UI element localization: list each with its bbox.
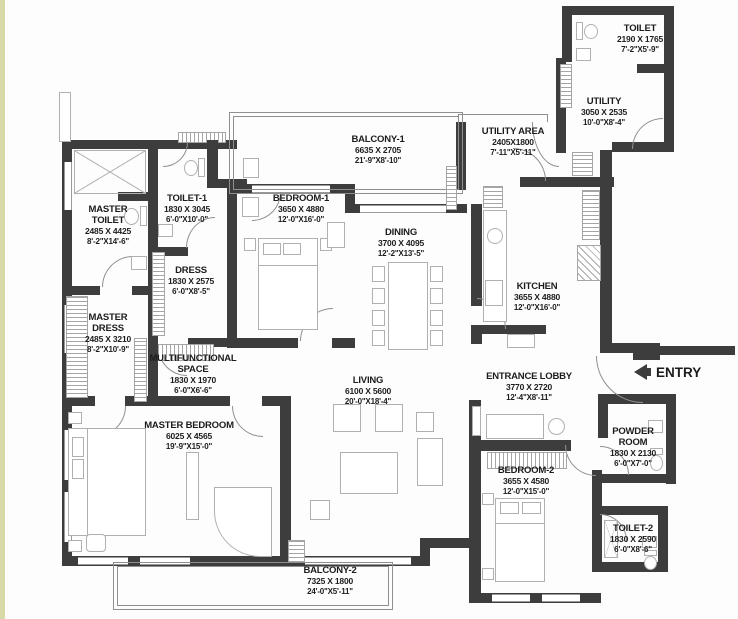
- room-dim-metric: 3700 X 4095: [378, 239, 424, 249]
- room-dim-imperial: 10'-0"X8'-4": [581, 118, 627, 127]
- sink: [131, 256, 147, 270]
- chair: [372, 330, 385, 346]
- room-dim-metric: 1830 X 2575: [168, 277, 214, 287]
- bed: [68, 428, 146, 536]
- room-label-powder-room: POWDER ROOM 1830 X 2130 6'-0"X7'-0": [604, 427, 662, 468]
- nightstand: [244, 238, 256, 251]
- wall-segment: [420, 546, 430, 566]
- room-dim-imperial: 12'-0"X16'-0": [273, 215, 329, 224]
- room-label-dining: DINING 3700 X 4095 12'-2"X13'-5": [378, 228, 424, 258]
- wall-segment: [664, 6, 674, 118]
- hob: [485, 280, 503, 306]
- washing-machine: [572, 152, 593, 176]
- room-dim-imperial: 8'-2"X10'-9": [79, 345, 137, 354]
- room-name: MASTER DRESS: [79, 313, 137, 335]
- room-dim-metric: 1830 X 3045: [164, 205, 210, 215]
- room-dim-metric: 2190 X 1765: [617, 35, 663, 45]
- balcony-1-outline: [233, 116, 459, 190]
- window: [492, 594, 530, 602]
- chair: [372, 288, 385, 304]
- door-arc: [102, 256, 133, 287]
- window: [360, 205, 446, 213]
- room-dim-metric: 3655 X 4880: [514, 293, 560, 303]
- chair: [430, 266, 443, 282]
- room-dim-imperial: 24'-0"X5'-11": [303, 587, 356, 596]
- wc-bowl: [584, 24, 598, 39]
- wall-segment: [562, 6, 572, 62]
- room-dim-metric: 6100 X 5600: [345, 387, 391, 397]
- room-dim-metric: 3650 X 4880: [273, 205, 329, 215]
- shower: [74, 150, 146, 194]
- room-dim-imperial: 20'-0"X18'-4": [345, 397, 391, 406]
- room-label-balcony-1: BALCONY-1 6635 X 2705 21'-9"X8'-10": [351, 135, 404, 165]
- utility-shelf: [560, 64, 572, 108]
- wc-cistern: [198, 158, 205, 177]
- dining-table: [388, 262, 428, 350]
- shoe-cabinet: [472, 406, 481, 436]
- wc-cistern: [140, 206, 147, 226]
- room-dim-imperial: 12'-2"X13'-5": [378, 249, 424, 258]
- round-table: [548, 418, 565, 435]
- room-label-entrance-lobby: ENTRANCE LOBBY 3770 X 2720 12'-4"X8'-11": [486, 372, 572, 402]
- balcony-step: [288, 540, 305, 562]
- wc-bowl: [644, 556, 657, 570]
- wall-segment: [469, 593, 601, 603]
- kitchen-shelf: [582, 190, 600, 240]
- sink: [576, 48, 591, 61]
- room-dim-imperial: 7'-2"X5'-9": [617, 45, 663, 54]
- room-dim-metric: 6025 X 4565: [144, 432, 234, 442]
- wall-segment: [600, 150, 612, 346]
- room-label-master-toilet: MASTER TOILET 2485 X 4425 8'-2"X14'-6": [79, 205, 137, 246]
- door-arc: [565, 445, 596, 476]
- room-name: MULTIFUNCTIONAL SPACE: [145, 354, 241, 376]
- chair: [430, 330, 443, 346]
- wardrobe: [152, 252, 165, 336]
- nightstand: [482, 493, 494, 505]
- page-edge-strip: [0, 0, 5, 619]
- kitchen-sink: [487, 228, 503, 244]
- floor-plan: TOILET 2190 X 1765 7'-2"X5'-9" UTILITY 3…: [0, 0, 738, 619]
- room-dim-imperial: 6'-0"X8'-5": [168, 287, 214, 296]
- wall-segment: [469, 440, 571, 451]
- wall-segment: [332, 338, 355, 348]
- room-label-bedroom-2: BEDROOM-2 3655 X 4580 12'-0"X15'-0": [498, 466, 554, 496]
- coffee-table: [340, 452, 398, 494]
- tv-unit: [416, 412, 434, 432]
- room-dim-metric: 7325 X 1800: [303, 577, 356, 587]
- room-label-balcony-2: BALCONY-2 7325 X 1800 24'-0"X5'-11": [303, 566, 356, 596]
- pouf: [310, 500, 330, 520]
- room-dim-metric: 3050 X 2535: [581, 108, 627, 118]
- desk: [242, 197, 259, 217]
- nightstand: [482, 568, 494, 580]
- room-dim-imperial: 6'-0"X10'-0": [164, 215, 210, 224]
- room-label-utility-area: UTILITY AREA 2405X1800 7'-11"X5'-11": [481, 127, 545, 157]
- bed: [258, 238, 318, 330]
- nightstand: [68, 540, 82, 552]
- room-dim-metric: 2405X1800: [481, 138, 545, 148]
- room-dim-imperial: 21'-9"X8'-10": [351, 156, 404, 165]
- room-label-living: LIVING 6100 X 5600 20'-0"X18'-4": [345, 376, 391, 406]
- window: [542, 594, 580, 602]
- chair: [372, 310, 385, 326]
- room-dim-imperial: 12'-0"X16'-0": [514, 303, 560, 312]
- chair: [372, 266, 385, 282]
- window: [64, 162, 72, 210]
- room-dim-imperial: 12'-4"X8'-11": [486, 393, 572, 402]
- wall-segment: [592, 470, 602, 510]
- room-dim-metric: 1830 X 2130: [604, 449, 662, 459]
- room-dim-imperial: 8'-2"X14'-6": [79, 237, 137, 246]
- room-dim-imperial: 12'-0"X15'-0": [498, 487, 554, 496]
- room-dim-imperial: 19'-9"X15'-0": [144, 442, 234, 451]
- ac-ledge: [446, 166, 457, 210]
- wall-segment: [656, 346, 735, 355]
- wall-segment: [598, 474, 676, 483]
- room-label-toilet-1: TOILET-1 1830 X 3045 6'-0"X10'-0": [164, 194, 210, 224]
- room-label-utility: UTILITY 3050 X 2535 10'-0"X8'-4": [581, 97, 627, 127]
- wall-segment: [262, 396, 291, 406]
- wall-segment: [420, 538, 478, 548]
- room-label-toilet-2: TOILET-2 1830 X 2590 6'-0"X8'-6": [610, 524, 656, 554]
- wall-segment: [62, 286, 100, 295]
- bed: [495, 498, 545, 582]
- armchair: [86, 534, 106, 552]
- wc-bowl: [184, 160, 198, 176]
- armchair: [375, 404, 403, 432]
- window: [140, 557, 190, 565]
- armchair: [333, 404, 361, 432]
- room-label-master-dress: MASTER DRESS 2485 X 3210 8'-2"X10'-9": [79, 313, 137, 354]
- balcony-planter: [243, 158, 259, 178]
- wall-segment: [637, 64, 674, 73]
- wall-segment: [471, 204, 482, 306]
- room-dim-metric: 3655 X 4580: [498, 477, 554, 487]
- sofa: [417, 438, 443, 486]
- chair: [430, 288, 443, 304]
- room-label-dress: DRESS 1830 X 2575 6'-0"X8'-5": [168, 266, 214, 296]
- utility-area-parapet: [458, 114, 548, 122]
- window: [305, 557, 411, 565]
- room-name: POWDER ROOM: [604, 427, 662, 449]
- room-dim-imperial: 6'-0"X6'-6": [145, 386, 241, 395]
- room-label-master-bedroom: MASTER BEDROOM 6025 X 4565 19'-9"X15'-0": [144, 421, 234, 451]
- duct-column: [59, 92, 71, 142]
- wall-segment: [666, 394, 676, 484]
- window: [78, 557, 128, 565]
- nightstand: [68, 412, 82, 424]
- wc-cistern: [576, 22, 583, 40]
- chaise-sofa: [214, 487, 272, 557]
- room-dim-imperial: 7'-11"X5'-11": [481, 148, 545, 157]
- room-dim-metric: 1830 X 1970: [145, 376, 241, 386]
- entry-label: ENTRY: [656, 365, 701, 380]
- washing-machine: [483, 186, 503, 208]
- room-label-kitchen: KITCHEN 3655 X 4880 12'-0"X16'-0": [514, 282, 560, 312]
- sink: [158, 224, 173, 237]
- chair: [430, 310, 443, 326]
- room-dim-imperial: 6'-0"X8'-6": [610, 545, 656, 554]
- wall-segment: [227, 338, 298, 348]
- room-dim-metric: 3770 X 2720: [486, 383, 572, 393]
- door-arc: [632, 118, 663, 149]
- console-table: [507, 334, 535, 348]
- bench-sofa: [486, 414, 544, 439]
- room-label-bedroom-1: BEDROOM-1 3650 X 4880 12'-0"X16'-0": [273, 194, 329, 224]
- room-dim-metric: 2485 X 3210: [79, 335, 137, 345]
- dresser: [186, 452, 199, 520]
- room-dim-imperial: 6'-0"X7'-0": [604, 459, 662, 468]
- side-table: [327, 222, 345, 248]
- room-label-multifunctional-space: MULTIFUNCTIONAL SPACE 1830 X 1970 6'-0"X…: [145, 354, 241, 395]
- fridge: [577, 245, 601, 281]
- entry-arrow-icon: [645, 368, 651, 376]
- wall-segment: [148, 338, 158, 347]
- wall-segment: [664, 112, 674, 152]
- wall-segment: [227, 184, 237, 348]
- room-name: MASTER TOILET: [79, 205, 137, 227]
- room-dim-metric: 6635 X 2705: [351, 146, 404, 156]
- room-dim-metric: 2485 X 4425: [79, 227, 137, 237]
- door-arc: [232, 406, 263, 437]
- room-label-toilet: TOILET 2190 X 1765 7'-2"X5'-9": [617, 24, 663, 54]
- room-dim-metric: 1830 X 2590: [610, 535, 656, 545]
- wall-segment: [562, 6, 674, 15]
